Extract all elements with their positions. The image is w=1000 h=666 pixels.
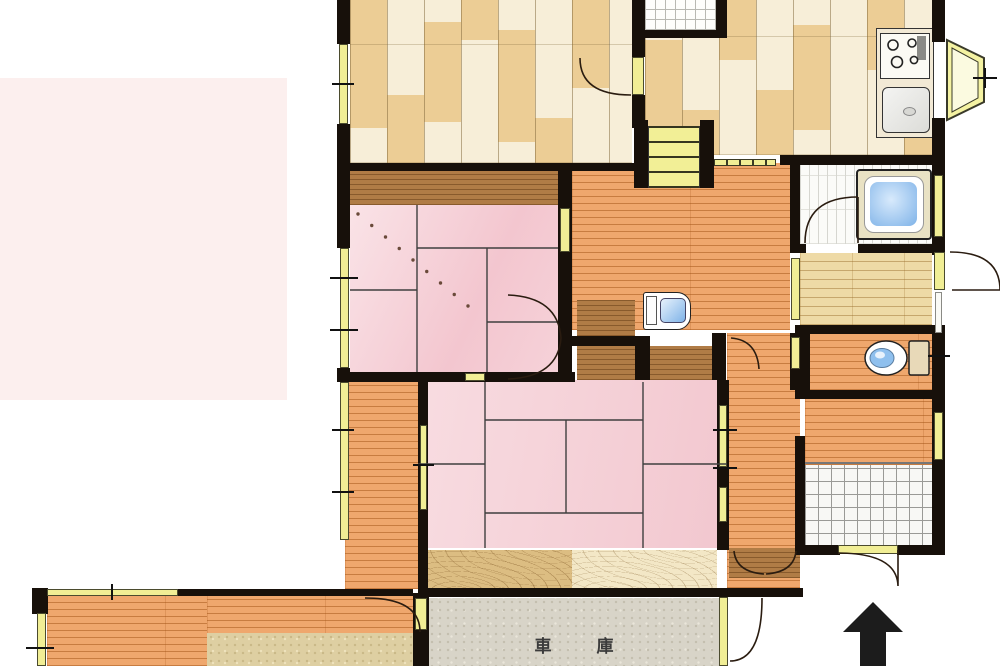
veranda-floor [345,382,418,589]
entry-step [729,548,800,578]
wall-segment [790,244,806,253]
closet-left [577,346,635,380]
window-or-door [420,425,427,510]
window-or-door [47,589,178,596]
wall-segment [700,120,714,188]
window-or-door [719,487,727,522]
closet-panel-right [572,550,717,588]
door-arc-garage-side [730,598,762,661]
wall-segment [558,168,572,380]
closet-strip [350,168,558,205]
stove-panel [917,36,926,60]
washbasin-bowl [660,298,686,323]
door-arc-backdoor [950,252,1000,290]
wall-segment [418,588,803,597]
staircase [648,126,700,188]
window-or-door [934,252,945,290]
window-or-door [37,613,46,666]
sink-icon [882,87,930,133]
wall-segment [337,372,575,382]
window-or-door [632,57,644,95]
wall-segment [337,163,636,171]
wall-segment [337,0,350,44]
closet-upper [577,300,635,336]
bay-window-handle [973,68,997,88]
wall-segment [932,0,945,42]
wall-segment [780,155,945,165]
window-or-door [934,412,943,460]
closet-panel-left [428,550,572,588]
wall-segment [716,0,727,38]
wall-segment [634,120,648,188]
wall-segment [795,436,805,466]
pink-overlay [0,78,287,400]
balcony-floor [645,0,716,30]
wall-segment [32,588,48,614]
window-or-door [791,337,800,369]
wall-segment [632,0,645,57]
toilet-floor [800,333,932,390]
tatami-room-2 [418,380,727,548]
window-or-door [719,405,727,467]
north-arrow [843,602,903,666]
plank-joints [350,0,632,163]
wall-segment [795,545,840,555]
door-arc-entrance [838,550,898,586]
wall-segment [560,336,645,346]
window-or-door [935,292,942,333]
sliding-track [714,159,776,166]
stove-icon [880,33,930,79]
bathtub-icon [856,169,932,240]
garage-label: 車庫 [428,630,720,658]
window-or-door [465,373,485,381]
window-or-door [838,545,898,554]
window-or-door [415,598,427,630]
washroom-floor [800,253,932,325]
wall-segment [795,390,945,399]
ground-area [207,633,413,666]
window-or-door [339,44,348,124]
wall-segment [795,325,945,334]
kitchen-counter [876,28,934,138]
window-or-door [934,175,943,237]
sink-drain [903,107,916,116]
floor-plan: 車庫 [0,0,1000,666]
closet-right [650,346,712,380]
genkan-floor [805,465,932,547]
bay-window-glass [952,48,978,112]
washbasin-icon [643,292,691,330]
window-or-door [791,258,800,320]
bay-window [947,40,984,120]
wall-segment [337,168,350,248]
wall-segment [643,30,717,38]
room-west-floor [350,0,632,163]
tatami-room-1 [350,205,558,380]
window-or-door [719,597,728,666]
window-or-door [340,382,349,540]
porch-floor-right [207,592,413,635]
wall-segment [800,333,810,398]
window-or-door [340,248,349,368]
wall-segment [795,465,805,548]
wall-segment [932,333,945,398]
wall-segment [712,333,726,380]
wall-segment [790,163,800,253]
genkan-step-edge [805,462,932,464]
wall-segment [178,589,413,596]
hall-entry-floor [805,398,932,465]
window-or-door [560,208,570,252]
washbasin-cabinet [646,296,657,325]
bathtub-water [870,182,917,226]
porch-floor-left [47,593,207,666]
